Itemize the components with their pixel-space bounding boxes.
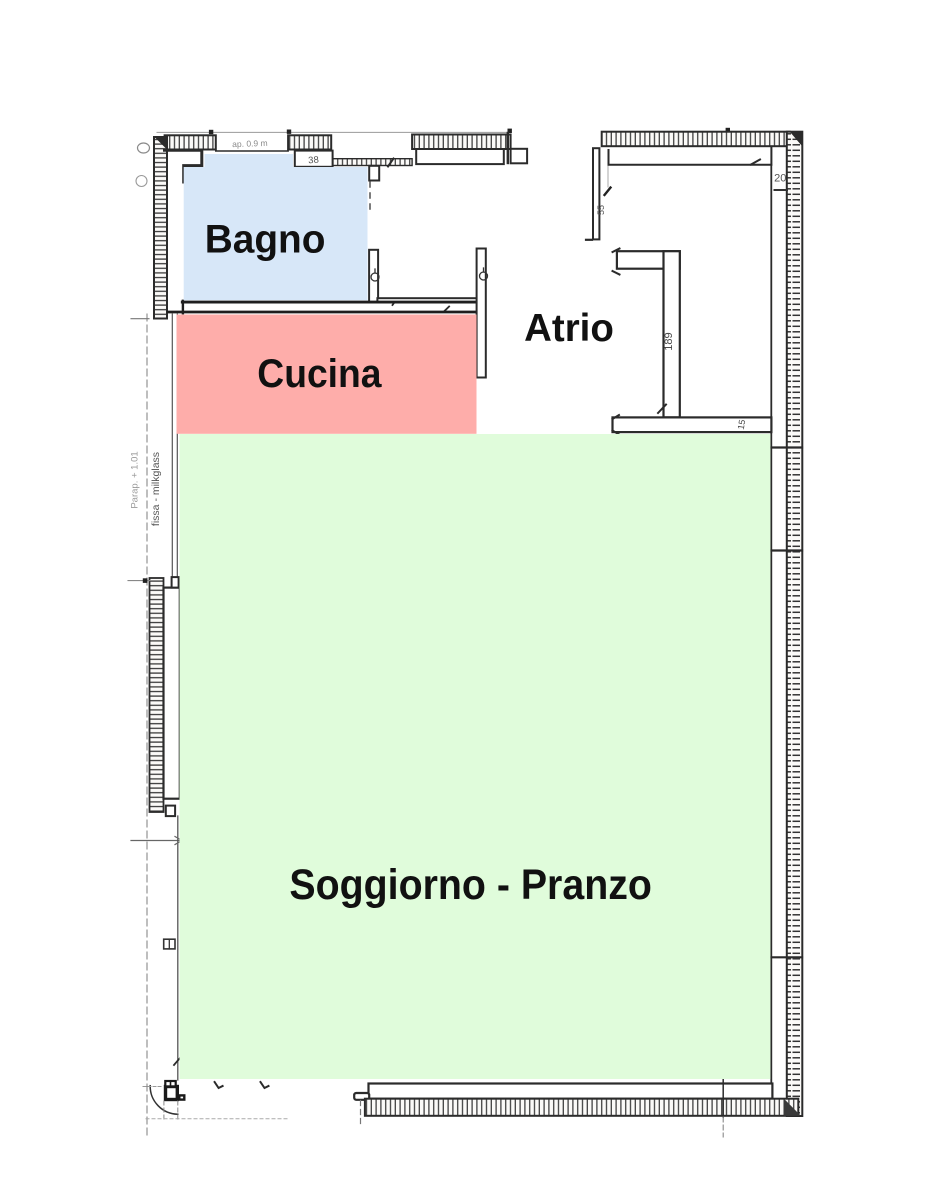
svg-text:Atrio: Atrio [524, 307, 614, 350]
svg-text:189: 189 [663, 332, 675, 350]
svg-text:15: 15 [736, 419, 748, 431]
svg-text:55: 55 [596, 205, 606, 215]
svg-text:20: 20 [774, 173, 786, 185]
svg-text:fissa - milkglass: fissa - milkglass [150, 452, 162, 526]
svg-text:Parap. + 1.01: Parap. + 1.01 [130, 451, 141, 508]
svg-text:Cucina: Cucina [257, 352, 382, 396]
svg-text:38: 38 [308, 155, 319, 167]
svg-text:Soggiorno - Pranzo: Soggiorno - Pranzo [289, 861, 652, 909]
svg-text:Bagno: Bagno [205, 218, 326, 262]
svg-text:ap. 0.9 m: ap. 0.9 m [232, 138, 268, 149]
